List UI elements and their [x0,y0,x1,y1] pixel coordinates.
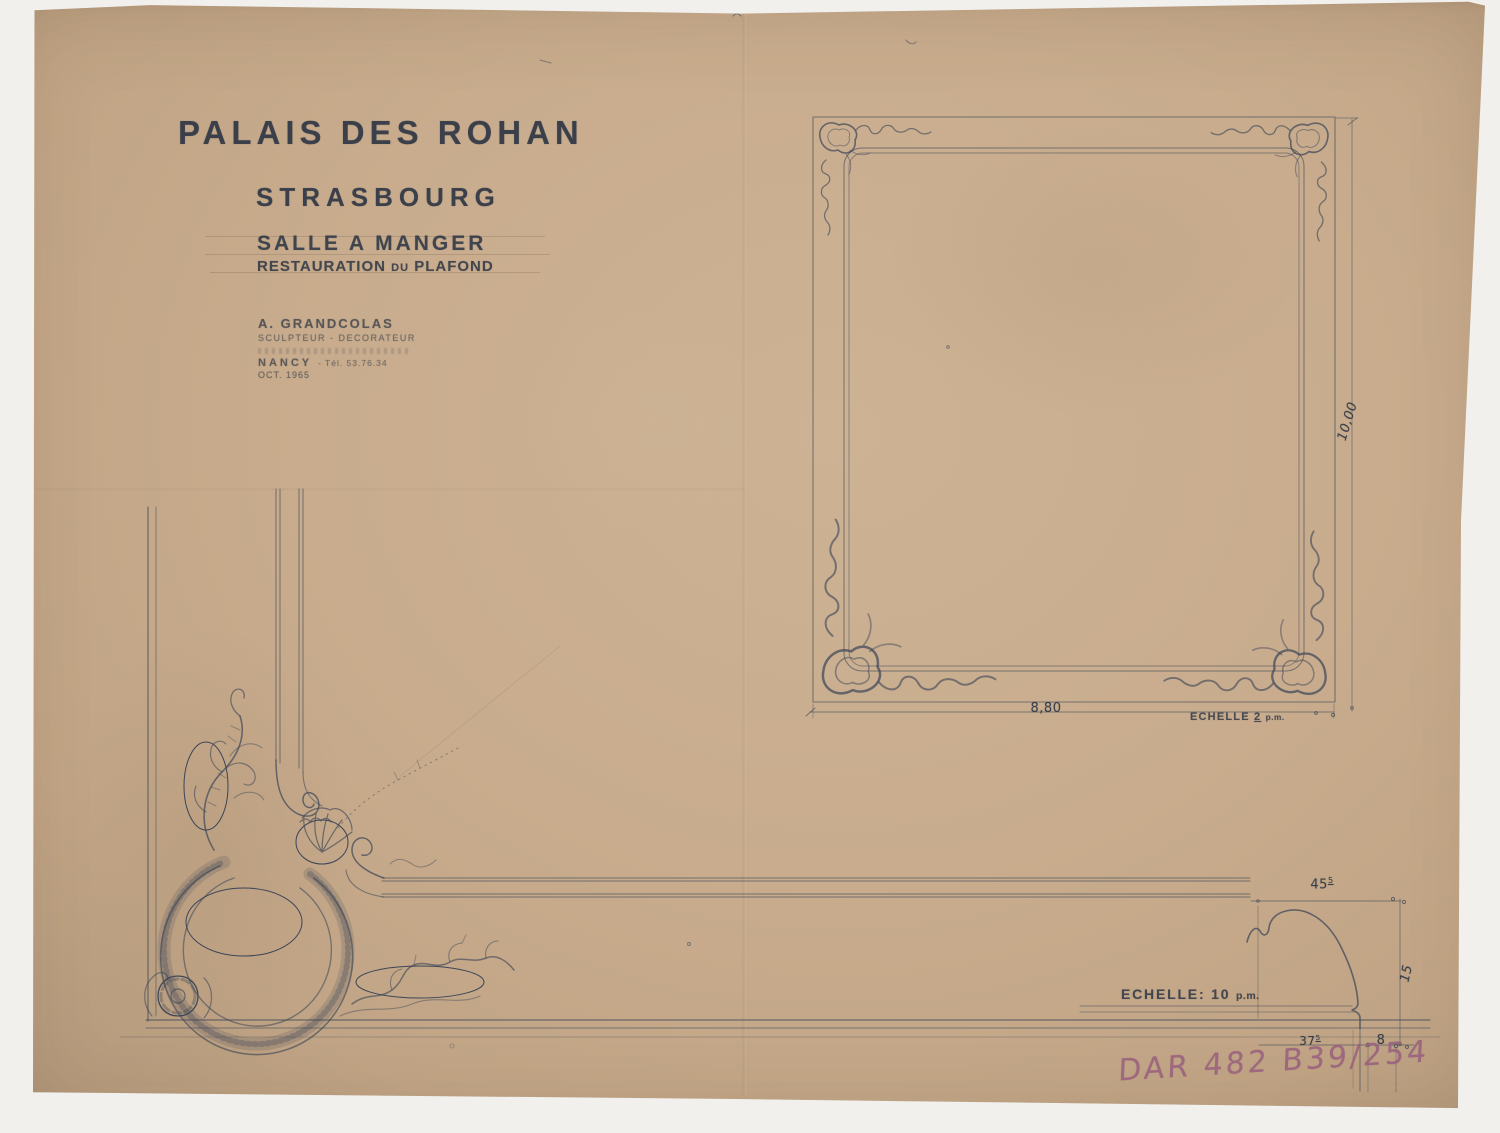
drawing-sheet: PALAIS DES ROHAN STRASBOURG SALLE A MANG… [0,0,1500,1133]
paper-stain [520,300,780,540]
scale-unit: p.m. [1236,990,1260,1002]
dotted-swag [338,748,458,828]
profile-top-dimension [1251,897,1406,903]
profile-right-label: 15 [1398,963,1416,983]
subject-word: RESTAURATION [257,258,386,275]
plan-height-label: 10,00 [1335,400,1361,442]
paper-stain [60,620,360,1080]
sheet-city: STRASBOURG [256,182,501,213]
plan-corner-ornament-tl [820,123,931,235]
stray-marks [450,10,949,1048]
profile-scale-label: ECHELLE: 10 p.m. [1121,986,1260,1002]
scale-word: ECHELLE [1190,711,1250,723]
ceiling-plan [806,117,1358,718]
scale-value: 10 [1211,986,1230,1002]
subject-word: PLAFOND [414,258,494,275]
credit-date: OCT. 1965 [258,370,310,380]
plan-corner-ornament-tr [1211,123,1328,241]
corner-rosette [145,973,212,1018]
credit-city: NANCY - Tél. 53.76.34 [258,357,388,369]
subject-word-small: DU [391,262,409,274]
dim-value: 45 [1310,877,1328,892]
credit-illegible-line [258,348,410,354]
archive-number: DAR 482 B39/254 [1118,1034,1430,1088]
shell-palmette [300,808,352,852]
plan-corner-ornament-br [1164,531,1325,693]
credit-role: SCULPTEUR - DECORATEUR [258,333,416,343]
corner-detail-drawing [120,489,1440,1055]
foliage-garland [340,935,514,1016]
fold-crease-horizontal [35,487,745,491]
plan-scale-label: ECHELLE 2 p.m. [1190,711,1285,723]
credit-name: A. GRANDCOLAS [258,316,394,331]
sheet-room: SALLE A MANGER [257,232,486,256]
profile-top-label: 455 [1294,876,1350,892]
sheet-title: PALAIS DES ROHAN [178,114,584,152]
scale-word: ECHELLE: [1121,986,1205,1002]
fold-crease-vertical [741,0,747,1095]
dim-sup: 5 [1328,876,1334,885]
paper-stain [880,120,1300,420]
credit-city-name: NANCY [258,357,312,369]
scan-background: PALAIS DES ROHAN STRASBOURG SALLE A MANG… [0,0,1500,1133]
scale-value: 2 [1254,711,1261,723]
sheet-subject: RESTAURATION DU PLAFOND [257,258,494,275]
construction-line [400,646,560,776]
plan-width-label: 8,80 [1016,701,1076,716]
scale-unit: p.m. [1266,713,1285,722]
acanthus-spray [194,689,264,850]
rocaille-cartouche [161,862,353,1055]
drawing-linework [0,0,1500,1133]
plan-corner-ornament-bl [823,520,995,694]
credit-phone: - Tél. 53.76.34 [318,358,388,368]
